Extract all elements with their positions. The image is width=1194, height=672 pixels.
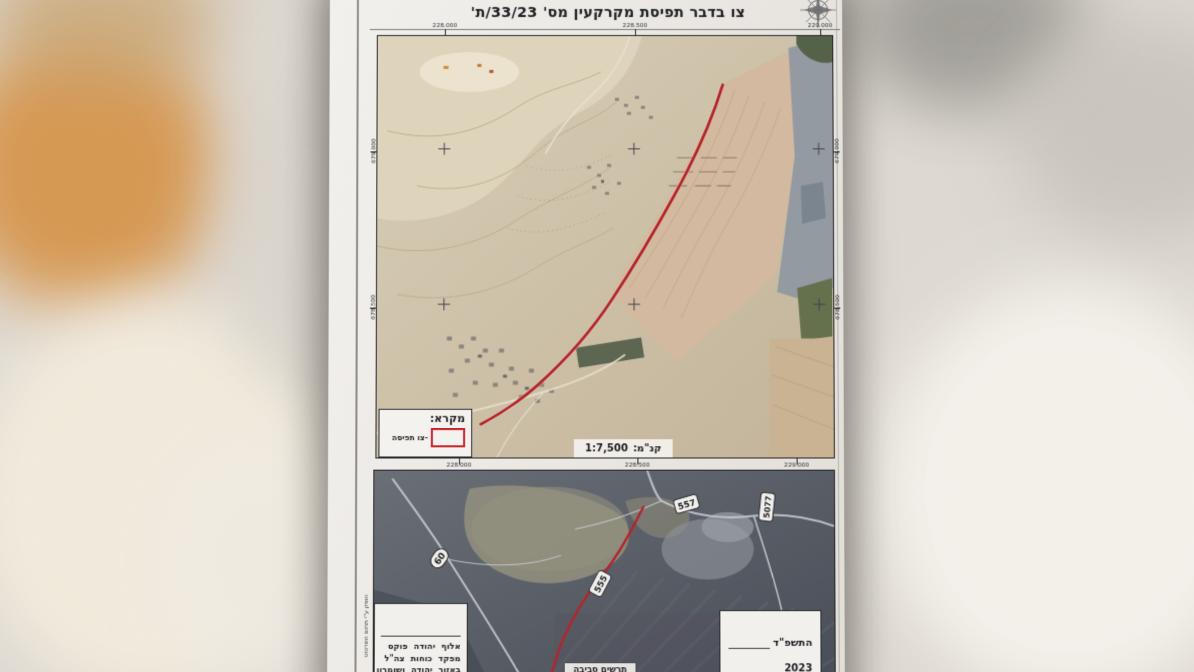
hebrew-year: התשפ"ד — [773, 638, 812, 649]
grid-coordinate-left: 679.000 — [370, 134, 377, 168]
grid-coordinate-top: 228.000 — [428, 22, 462, 29]
grid-coordinate-top: 228.500 — [618, 22, 652, 29]
grid-tick — [445, 29, 446, 35]
legend-title: מקרא: — [386, 412, 466, 425]
grid-coordinate-bottom: 228.000 — [442, 462, 476, 469]
page-edge-line — [836, 0, 840, 672]
signatory-area: באזור יהודה ושומרון — [381, 664, 461, 672]
grid-tick — [820, 29, 821, 35]
document-title: צו בדבר תפיסת מקרקעין מס' 33/23/ת' — [390, 5, 826, 21]
legend-item-label: -צו תפיסה — [392, 433, 428, 442]
photo-of-seizure-order-document: צו בדבר תפיסת מקרקעין מס' 33/23/ת' — [0, 0, 1194, 672]
page-margin-line — [354, 0, 358, 672]
grid-coordinate-right: 679.000 — [833, 134, 840, 168]
document-paper: צו בדבר תפיסת מקרקעין מס' 33/23/ת' — [327, 0, 845, 672]
date-fill-line — [729, 662, 782, 672]
scale-caption: קנ"מ: — [633, 443, 662, 454]
signature-box: אלוף יהודה פוקס מפקד כוחות צה"ל באזור יה… — [374, 603, 468, 672]
grid-coordinate-bottom: 229.000 — [779, 462, 813, 469]
grid-coordinate-bottom: 228.500 — [620, 462, 654, 469]
date-fill-line — [728, 637, 770, 649]
upper-map-satellite-image — [376, 36, 833, 457]
signature-line — [381, 636, 461, 637]
produced-by-credit: הופק ע"י תחום השרטוט — [362, 573, 369, 672]
grid-tick — [635, 29, 636, 35]
grid-coordinate-top: 229.000 — [803, 22, 837, 29]
grid-coordinate-left: 678.500 — [369, 290, 376, 324]
title-divider — [370, 29, 840, 30]
grid-coordinate-right: 678.500 — [834, 290, 841, 324]
upper-map: 228.000 228.500 229.000 228.000 228.500 … — [375, 35, 834, 458]
signatory-title: מפקד כוחות צה"ל — [381, 653, 461, 665]
vicinity-map-caption: תרשים סביבה — [564, 662, 637, 672]
gregorian-year: 2023 — [784, 663, 812, 672]
background-blur — [880, 280, 1194, 672]
signatory-name: אלוף יהודה פוקס — [381, 641, 461, 653]
legend-box: מקרא: -צו תפיסה — [378, 409, 472, 458]
date-box: התשפ"ד 2023 — [719, 610, 821, 672]
road-shield-5077: 5077 — [758, 492, 775, 522]
scale-value: 1:7,500 — [585, 443, 628, 454]
scale-label: קנ"מ: 1:7,500 — [574, 439, 673, 457]
seizure-order-swatch — [431, 428, 465, 447]
